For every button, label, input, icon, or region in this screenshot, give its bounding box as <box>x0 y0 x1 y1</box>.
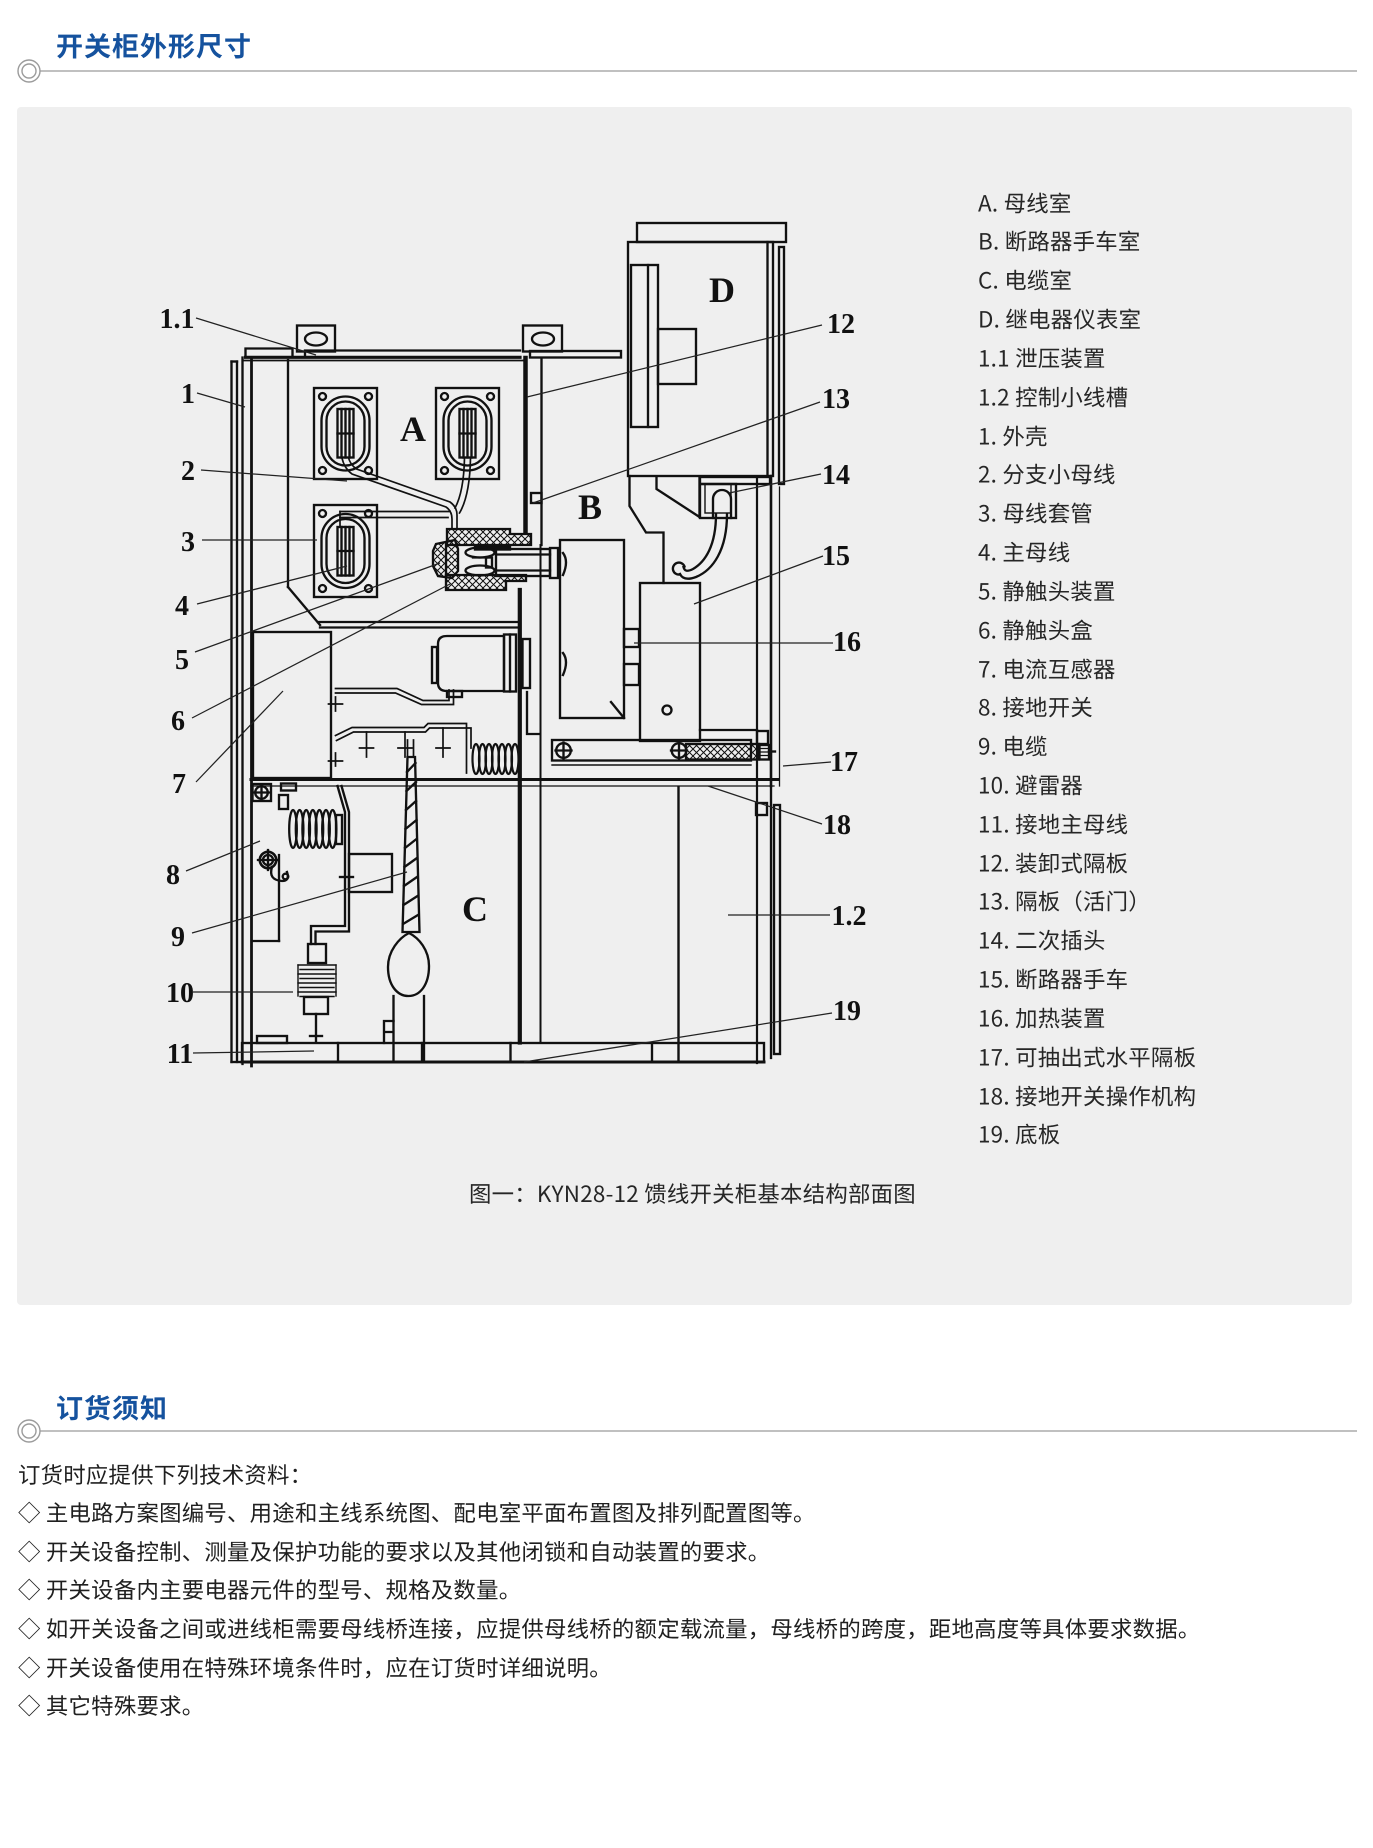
svg-text:1.1: 1.1 <box>160 304 195 335</box>
svg-text:C: C <box>462 889 488 929</box>
svg-text:18: 18 <box>823 810 851 841</box>
svg-text:9: 9 <box>171 922 185 953</box>
svg-text:5: 5 <box>175 645 189 676</box>
svg-text:13: 13 <box>822 384 850 415</box>
svg-text:2: 2 <box>181 456 195 487</box>
svg-text:15: 15 <box>822 541 850 572</box>
svg-text:8: 8 <box>166 860 180 891</box>
svg-text:17: 17 <box>830 747 858 778</box>
svg-text:12: 12 <box>827 309 855 340</box>
svg-text:11: 11 <box>167 1039 193 1070</box>
svg-text:1.2: 1.2 <box>832 901 867 932</box>
svg-text:4: 4 <box>175 591 189 622</box>
svg-text:7: 7 <box>172 769 186 800</box>
svg-text:B: B <box>578 487 602 527</box>
svg-text:6: 6 <box>171 706 185 737</box>
svg-text:10: 10 <box>166 978 194 1009</box>
svg-text:14: 14 <box>822 460 850 491</box>
svg-text:A: A <box>400 409 426 449</box>
svg-text:16: 16 <box>833 627 861 658</box>
svg-text:3: 3 <box>181 527 195 558</box>
svg-text:19: 19 <box>833 996 861 1027</box>
svg-text:D: D <box>709 270 735 310</box>
svg-text:1: 1 <box>181 379 195 410</box>
